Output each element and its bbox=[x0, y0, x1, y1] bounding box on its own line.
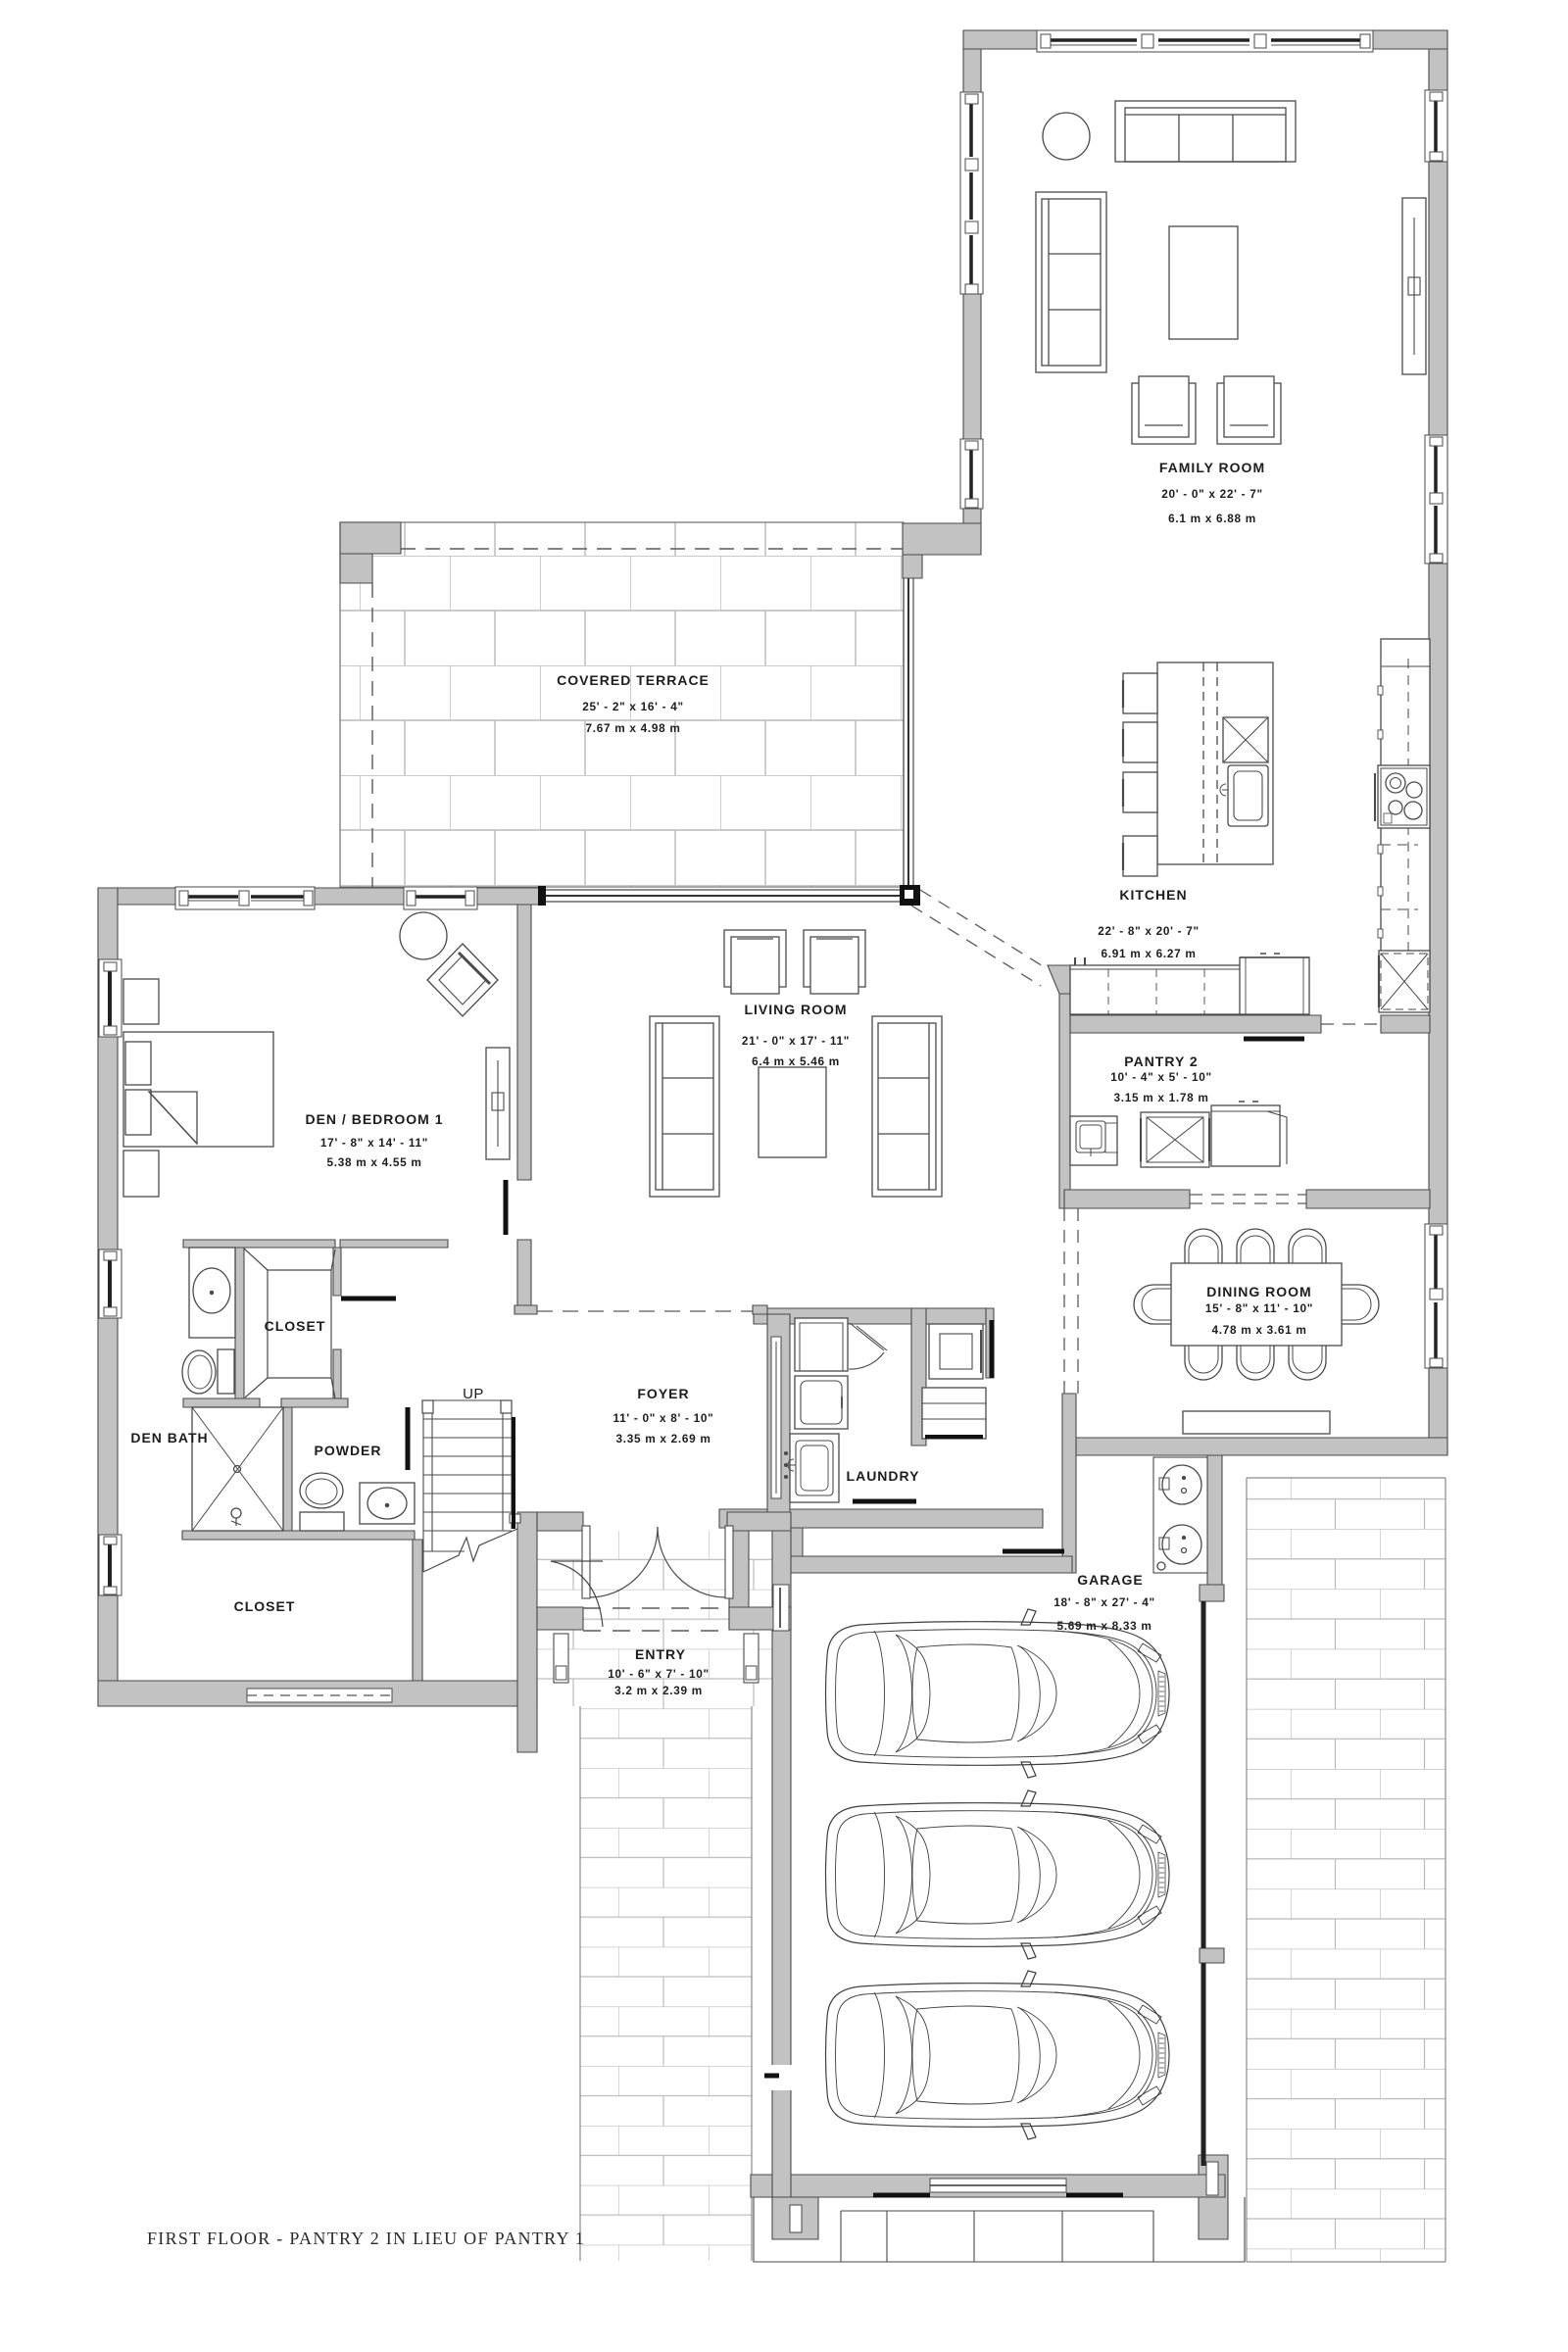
svg-text:5.38 m x 4.55 m: 5.38 m x 4.55 m bbox=[326, 1155, 421, 1169]
svg-text:LAUNDRY: LAUNDRY bbox=[847, 1468, 920, 1484]
svg-text:5.69 m x 8.33 m: 5.69 m x 8.33 m bbox=[1056, 1619, 1151, 1633]
svg-text:20' - 0" x 22' - 7": 20' - 0" x 22' - 7" bbox=[1161, 487, 1263, 501]
svg-text:6.91 m x 6.27 m: 6.91 m x 6.27 m bbox=[1101, 947, 1196, 960]
svg-text:UP: UP bbox=[463, 1386, 484, 1402]
svg-text:PANTRY 2: PANTRY 2 bbox=[1124, 1053, 1198, 1069]
svg-text:22' - 8" x 20' - 7": 22' - 8" x 20' - 7" bbox=[1098, 924, 1200, 938]
svg-text:21' - 0" x 17' - 11": 21' - 0" x 17' - 11" bbox=[742, 1034, 850, 1048]
svg-text:3.2 m x 2.39 m: 3.2 m x 2.39 m bbox=[614, 1684, 703, 1697]
svg-text:FOYER: FOYER bbox=[637, 1386, 689, 1401]
svg-text:KITCHEN: KITCHEN bbox=[1119, 887, 1187, 903]
svg-text:25' - 2" x 16' - 4": 25' - 2" x 16' - 4" bbox=[582, 700, 684, 713]
svg-text:6.1 m x 6.88 m: 6.1 m x 6.88 m bbox=[1168, 512, 1256, 525]
svg-text:18' - 8" x 27' - 4": 18' - 8" x 27' - 4" bbox=[1053, 1595, 1155, 1609]
svg-text:3.15 m x 1.78 m: 3.15 m x 1.78 m bbox=[1113, 1091, 1208, 1104]
svg-text:7.67 m x 4.98 m: 7.67 m x 4.98 m bbox=[585, 721, 680, 735]
svg-text:DEN BATH: DEN BATH bbox=[130, 1430, 208, 1445]
svg-text:CLOSET: CLOSET bbox=[265, 1318, 326, 1334]
svg-text:ENTRY: ENTRY bbox=[635, 1646, 686, 1662]
svg-text:3.35 m x 2.69 m: 3.35 m x 2.69 m bbox=[615, 1432, 710, 1445]
svg-text:DINING ROOM: DINING ROOM bbox=[1206, 1284, 1311, 1299]
svg-text:4.78 m x 3.61 m: 4.78 m x 3.61 m bbox=[1211, 1323, 1306, 1337]
svg-text:11' - 0" x 8' - 10": 11' - 0" x 8' - 10" bbox=[613, 1411, 714, 1425]
svg-text:LIVING ROOM: LIVING ROOM bbox=[744, 1002, 847, 1017]
svg-text:10' - 6" x 7' - 10": 10' - 6" x 7' - 10" bbox=[608, 1667, 710, 1681]
svg-text:FAMILY ROOM: FAMILY ROOM bbox=[1159, 460, 1265, 475]
svg-text:CLOSET: CLOSET bbox=[234, 1598, 296, 1614]
svg-text:10' - 4" x 5' - 10": 10' - 4" x 5' - 10" bbox=[1110, 1070, 1212, 1084]
svg-text:15' - 8" x 11' - 10": 15' - 8" x 11' - 10" bbox=[1205, 1301, 1313, 1315]
svg-text:GARAGE: GARAGE bbox=[1077, 1572, 1143, 1588]
svg-text:DEN / BEDROOM 1: DEN / BEDROOM 1 bbox=[305, 1111, 443, 1127]
svg-text:6.4 m x 5.46 m: 6.4 m x 5.46 m bbox=[752, 1054, 840, 1068]
svg-text:POWDER: POWDER bbox=[315, 1443, 382, 1458]
svg-text:17' - 8" x 14' - 11": 17' - 8" x 14' - 11" bbox=[320, 1136, 428, 1150]
svg-text:COVERED TERRACE: COVERED TERRACE bbox=[557, 672, 710, 688]
svg-text:FIRST FLOOR - PANTRY 2 IN LIEU: FIRST FLOOR - PANTRY 2 IN LIEU OF PANTRY… bbox=[147, 2229, 585, 2248]
